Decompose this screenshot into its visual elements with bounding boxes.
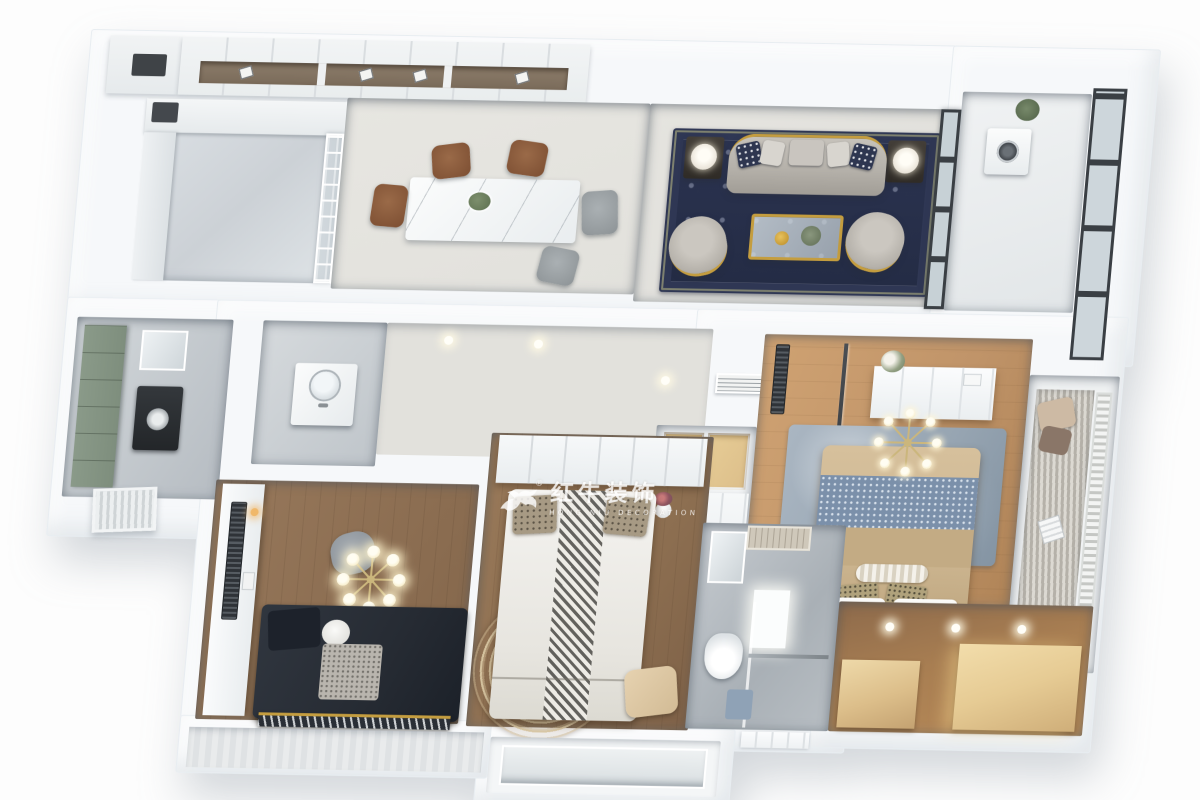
room-bathroom-left	[62, 317, 234, 500]
chandelier-bulb	[386, 554, 400, 567]
floor-cushion	[624, 665, 679, 719]
white-pillow	[321, 619, 351, 645]
shelf-divider	[443, 66, 453, 88]
wood-cabinet	[836, 659, 920, 728]
dining-chair	[535, 245, 581, 288]
chandelier-bulb	[900, 467, 911, 477]
side-table	[885, 140, 927, 183]
watermark-title: 红牛装饰	[550, 483, 701, 506]
bolster-pillow	[855, 564, 929, 583]
room-kitchen	[131, 98, 347, 284]
downlight	[1017, 625, 1027, 634]
washstand	[290, 363, 358, 426]
ac-vent	[221, 502, 248, 620]
dresser-decor	[963, 374, 982, 386]
room-walk-in-closet	[828, 601, 1094, 736]
chandelier-bulb	[392, 574, 406, 587]
chandelier-bulb	[879, 458, 890, 468]
shelf-decor	[413, 69, 428, 83]
washer-door	[996, 140, 1020, 162]
ac-vent	[770, 344, 790, 414]
sink-basin	[146, 408, 170, 430]
room-bedroom-second	[466, 433, 714, 731]
sage-storage-cabinet	[71, 325, 127, 488]
throw-pillow	[735, 140, 763, 169]
room-laundry-balcony	[944, 92, 1092, 313]
shelf-decor	[239, 65, 254, 79]
brand-watermark: ® 红牛装饰 HONG NIU DECORATION	[497, 483, 720, 517]
bathroom-mirror	[707, 531, 748, 584]
room-bathroom-main	[685, 523, 846, 731]
chandelier-bulb	[382, 594, 396, 607]
desk-item	[242, 572, 256, 590]
side-table	[683, 136, 725, 179]
entry-door	[740, 732, 809, 749]
black-vanity	[132, 386, 184, 451]
chandelier-bulb	[905, 409, 916, 419]
toilet	[702, 633, 744, 680]
apartment-3d-floorplan: ® 红牛装饰 HONG NIU DECORATION	[23, 29, 1166, 800]
bay-window-glass	[499, 745, 709, 789]
dining-table	[405, 177, 581, 243]
light-panel	[749, 590, 790, 649]
bay-window	[486, 737, 721, 797]
watermark-subtitle: HONG NIU DECORATION	[549, 509, 699, 517]
sputnik-chandelier	[864, 402, 951, 483]
chandelier-bulb	[367, 545, 381, 558]
chandelier-bulb	[925, 417, 936, 427]
table-greenery	[800, 226, 822, 246]
classic-sofa	[726, 133, 889, 196]
wood-cabinet-lit	[952, 644, 1082, 732]
fruit-tray	[774, 231, 789, 245]
dining-chair	[369, 183, 409, 228]
table-lamp	[892, 147, 920, 173]
study-balcony-ledge	[186, 727, 485, 773]
room-study	[195, 479, 479, 724]
chandelier-bulb	[931, 438, 942, 448]
washing-machine	[984, 128, 1032, 175]
wardrobe	[496, 435, 708, 487]
storage-cabinet-wall	[178, 37, 591, 103]
floorplan-render: ® 红牛装饰 HONG NIU DECORATION	[0, 0, 1200, 800]
downlight	[885, 622, 895, 631]
downlight	[951, 624, 961, 633]
registered-mark: ®	[535, 479, 544, 488]
shelf-decor	[515, 71, 530, 85]
throw-pillow	[848, 142, 878, 171]
shelf-decor	[359, 68, 374, 82]
dark-pillow	[268, 607, 321, 651]
throw-pillow	[759, 139, 786, 166]
table-lamp	[690, 143, 718, 169]
chandelier-bulb	[873, 437, 884, 447]
room-living	[633, 104, 958, 308]
outdoor-ac-unit	[92, 487, 158, 533]
vanity-mirror	[139, 330, 189, 371]
desk-lamp-glow	[250, 508, 259, 516]
room-dining	[331, 98, 651, 295]
dining-chair	[505, 139, 549, 178]
knit-blanket	[318, 643, 383, 700]
chandelier-bulb	[336, 573, 350, 586]
chandelier-bulb	[342, 593, 356, 606]
built-in-oven	[131, 54, 167, 77]
ceiling-vent	[746, 526, 812, 551]
bed-runner	[816, 475, 979, 530]
balcony-plant	[1015, 99, 1041, 121]
kitchen-tall-cabinet	[106, 35, 183, 94]
shower-bar	[748, 654, 828, 660]
daybed-dark	[252, 604, 468, 722]
open-shelf-band	[199, 61, 569, 90]
coffee-table	[748, 214, 844, 262]
shelf-divider	[317, 63, 327, 85]
faucet	[318, 403, 328, 407]
dining-chair	[582, 190, 618, 236]
room-powder	[251, 320, 388, 466]
chandelier-bulb	[921, 459, 932, 469]
back-cushion	[788, 139, 824, 166]
dining-chair	[431, 142, 471, 180]
round-mirror	[310, 371, 340, 399]
cooktop	[151, 102, 179, 122]
bath-mat	[725, 689, 754, 719]
throw-pillow	[827, 141, 850, 167]
running-bull-icon	[497, 485, 543, 515]
